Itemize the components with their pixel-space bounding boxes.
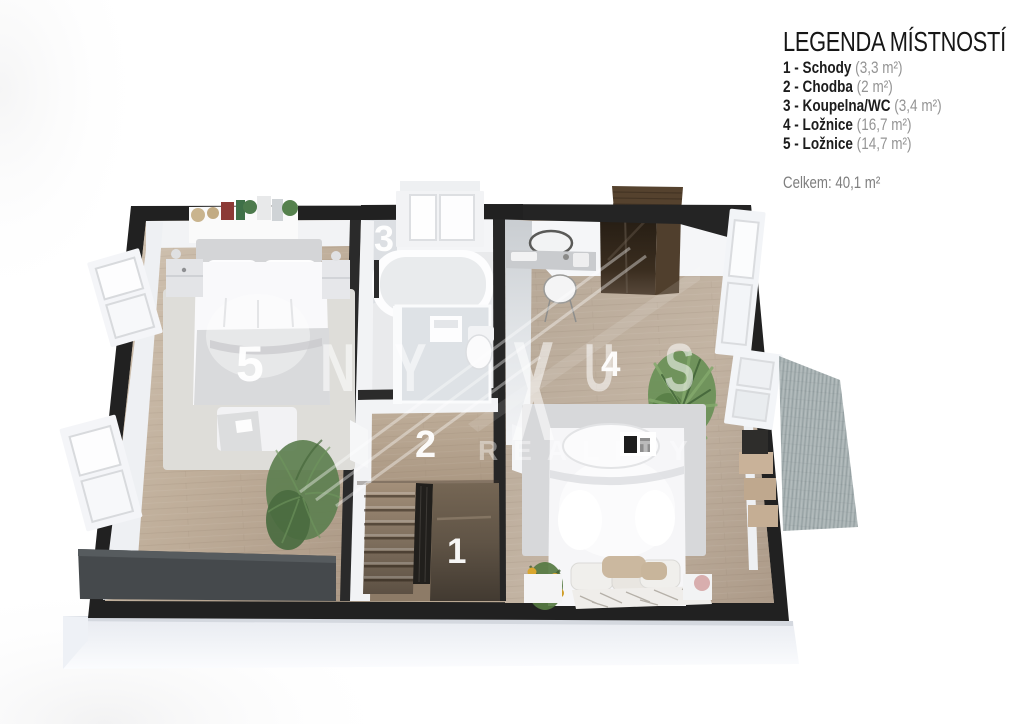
- svg-text:2: 2: [415, 424, 436, 466]
- svg-text:5: 5: [236, 336, 264, 392]
- svg-text:3: 3: [374, 218, 394, 259]
- svg-text:Y: Y: [394, 329, 427, 406]
- svg-text:N: N: [320, 329, 355, 406]
- svg-text:REALITY: REALITY: [478, 435, 703, 466]
- svg-text:1: 1: [447, 532, 466, 571]
- svg-text:4: 4: [601, 345, 621, 384]
- svg-text:S: S: [664, 330, 695, 406]
